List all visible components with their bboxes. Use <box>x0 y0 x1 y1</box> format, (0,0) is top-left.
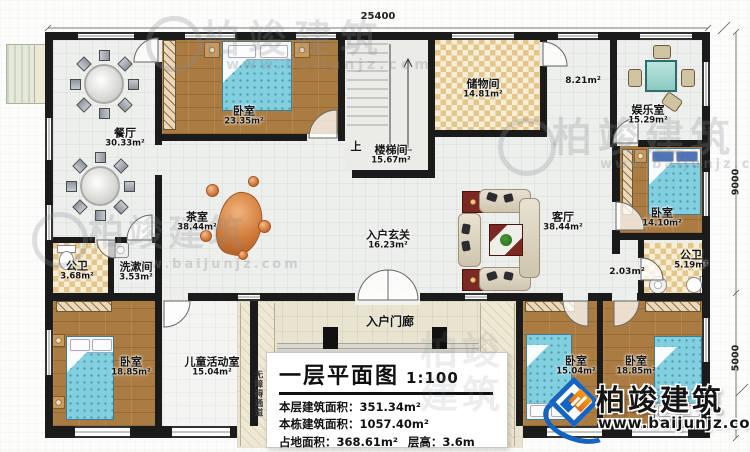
wall <box>638 240 644 258</box>
wall <box>260 293 355 301</box>
chair <box>99 108 110 119</box>
wall <box>115 237 127 243</box>
title-row-3: 占地面积：368.61m²层高：3.6m <box>279 434 497 451</box>
nightstand <box>204 42 220 58</box>
dimension-top: 25400 <box>361 11 396 22</box>
plant-icon <box>500 234 512 246</box>
wall <box>516 293 523 426</box>
wardrobe <box>525 301 575 312</box>
window <box>465 293 487 301</box>
wall <box>188 293 238 301</box>
bed <box>66 336 114 420</box>
room-label-bedroom-bl: 卧室18.85m² <box>111 356 150 377</box>
chair <box>681 69 695 87</box>
wall <box>638 140 708 147</box>
window <box>45 330 53 375</box>
cushion <box>503 271 513 281</box>
table-top <box>80 166 120 206</box>
wall <box>612 233 708 240</box>
wall <box>637 293 708 301</box>
brand-url: www.baijunjz.com <box>598 414 750 432</box>
room-label-children: 儿童活动室15.04m² <box>185 356 240 377</box>
blanket-fold <box>223 59 249 85</box>
column <box>432 327 447 349</box>
bed <box>222 41 292 111</box>
window <box>640 32 692 40</box>
room-label-tea-room: 茶室38.44m² <box>177 211 216 232</box>
wardrobe <box>56 301 112 312</box>
blanket-fold <box>527 345 551 369</box>
window <box>45 118 53 160</box>
wall <box>588 293 612 301</box>
bed <box>648 148 701 215</box>
cushion <box>461 223 471 234</box>
room-label-bedroom-top: 卧室23.35m² <box>224 105 263 126</box>
tea-stool <box>206 184 219 197</box>
column <box>323 327 338 349</box>
sink <box>649 276 667 294</box>
plan-scale: 1:100 <box>406 369 459 387</box>
dimension-right-lower: 5000 <box>731 345 742 371</box>
hall-area-label: 8.21m² <box>565 76 601 86</box>
pillow <box>260 45 288 58</box>
site-area: 占地面积：368.61m² <box>279 435 398 449</box>
window <box>296 32 336 40</box>
chair <box>653 45 671 59</box>
dining-table <box>84 64 124 104</box>
wall <box>487 293 563 301</box>
wall <box>540 32 547 42</box>
wall <box>155 32 162 38</box>
title-row-1: 本层建筑面积：351.34m² <box>279 399 497 416</box>
wall <box>155 62 162 145</box>
room-label-washroom: 洗漱间3.53m² <box>119 261 153 282</box>
pillow <box>676 151 698 162</box>
nightstand <box>52 334 65 347</box>
title-row: 一层平面图1:100 <box>279 358 497 390</box>
room-label-storage: 储物间14.81m² <box>463 78 502 99</box>
window <box>558 32 598 40</box>
room-label-entertainment: 娱乐室15.29m² <box>628 104 667 125</box>
brand-logo: 柏竣建筑 www.baijunjz.com <box>538 372 750 448</box>
wall <box>108 240 114 293</box>
room-label-stairwell: 楼梯间15.67m² <box>371 144 410 165</box>
wall <box>612 240 620 254</box>
tea-stool <box>258 220 271 233</box>
tea-stool <box>238 250 248 260</box>
room-label-dining: 餐厅30.33m² <box>105 127 144 148</box>
wall <box>428 32 435 178</box>
chair <box>99 50 110 61</box>
window <box>702 318 710 362</box>
pillow <box>652 151 674 162</box>
chair <box>95 152 106 163</box>
entry-door-opening <box>355 293 420 305</box>
chair <box>70 79 81 90</box>
chair <box>95 210 106 221</box>
title-underline <box>279 392 493 395</box>
title-block: 一层平面图1:100 本层建筑面积：351.34m² 本栋建筑面积：1057.4… <box>266 352 508 448</box>
window <box>238 293 260 301</box>
window <box>75 426 130 438</box>
tea-stool <box>248 176 259 187</box>
wall <box>352 170 435 178</box>
entry-porch-label: 入户门廊 <box>366 313 414 330</box>
wardrobe <box>622 149 633 215</box>
wall <box>610 32 617 147</box>
plan-title: 一层平面图 <box>279 364 399 389</box>
window <box>172 426 230 438</box>
pillow <box>228 45 256 58</box>
nightstand <box>634 149 647 163</box>
room-label-bath-519: 公卫5.19m² <box>674 249 708 270</box>
chair <box>124 181 135 192</box>
wall <box>428 130 547 137</box>
game-table <box>645 60 677 92</box>
wall <box>420 293 465 301</box>
wall <box>638 280 644 293</box>
wall <box>540 66 547 137</box>
pillow <box>70 339 90 351</box>
wall <box>612 146 620 202</box>
nightstand <box>294 42 310 58</box>
window <box>45 205 53 240</box>
chair <box>66 181 77 192</box>
wardrobe <box>645 301 701 312</box>
nightstand <box>52 396 65 409</box>
cushion <box>461 240 471 251</box>
ramp-label-left: 无障碍通道 <box>252 370 264 418</box>
brand-name: 柏竣建筑 <box>596 377 724 419</box>
coffee-table <box>489 224 523 256</box>
dining-table <box>80 166 120 206</box>
wardrobe <box>163 40 176 130</box>
chair <box>128 79 139 90</box>
toilet <box>686 277 702 293</box>
wall <box>338 32 345 141</box>
vestibule-area-label: 2.03m² <box>609 267 645 277</box>
window <box>702 62 710 106</box>
sink <box>112 242 129 258</box>
wall <box>48 293 162 301</box>
wall <box>155 300 162 426</box>
window <box>185 32 235 40</box>
floor-height: 层高：3.6m <box>408 435 475 449</box>
wall <box>48 237 95 243</box>
wall <box>152 237 160 243</box>
sofa <box>458 213 481 267</box>
dimension-right-upper: 9000 <box>731 169 742 195</box>
blanket-fold <box>655 347 679 371</box>
room-label-foyer: 入户玄关16.23m² <box>366 229 410 250</box>
chair <box>628 69 642 87</box>
pillow <box>92 339 112 351</box>
room-label-bath-368: 公卫3.68m² <box>60 260 94 281</box>
room-label-bedroom-right: 卧室14.10m² <box>642 207 681 228</box>
side-porch-steps <box>6 44 36 104</box>
room-label-living: 客厅38.44m² <box>543 211 582 232</box>
window <box>452 32 514 40</box>
title-row-2: 本栋建筑面积：1057.40m² <box>279 416 497 433</box>
table-top <box>84 64 124 104</box>
blanket-fold <box>649 163 673 187</box>
wall <box>160 134 307 141</box>
blanket-fold <box>67 352 89 374</box>
stairs-up-label: 上 <box>351 138 362 154</box>
window <box>702 172 710 216</box>
window <box>78 32 134 40</box>
